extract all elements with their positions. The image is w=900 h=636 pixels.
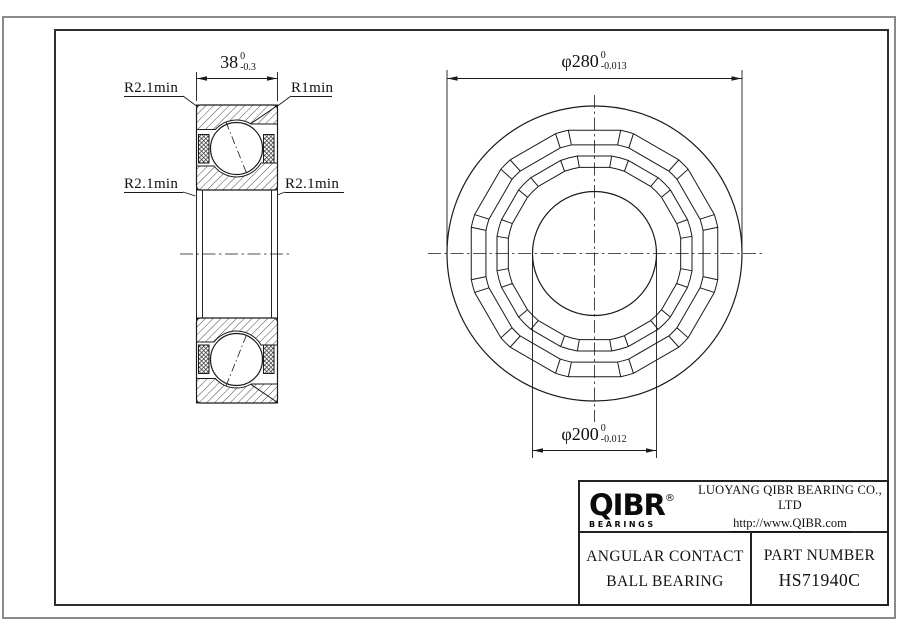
width-dimension-text: 38 0 -0.3 xyxy=(173,51,303,73)
title-block: QIBR® BEARINGS LUOYANG QIBR BEARING CO.,… xyxy=(578,480,889,606)
outer-dia-tolerance: 0 -0.013 xyxy=(601,50,627,72)
product-type-cell: ANGULAR CONTACT BALL BEARING xyxy=(580,533,752,604)
company-name: LUOYANG QIBR BEARING CO., LTD xyxy=(693,483,887,513)
top-section xyxy=(197,105,278,190)
bore-dia-value: φ200 xyxy=(561,423,598,445)
product-type-line1: ANGULAR CONTACT xyxy=(580,544,750,569)
front-view-centerlines xyxy=(428,95,762,422)
side-view-drawing xyxy=(180,72,292,403)
bore-dia-dimension-text: φ200 0 -0.012 xyxy=(529,423,659,445)
width-dim-tolerance: 0 -0.3 xyxy=(240,51,256,73)
logo-subtext: BEARINGS xyxy=(589,520,693,529)
part-number-label: PART NUMBER xyxy=(752,544,887,567)
outer-dia-dimension-text: φ280 0 -0.013 xyxy=(529,50,659,72)
drawing-sheet: 38 0 -0.3 R2.1min R1min R2.1min R2.1min … xyxy=(0,0,900,636)
part-number-cell: PART NUMBER HS71940C xyxy=(752,533,887,604)
company-info: LUOYANG QIBR BEARING CO., LTD http://www… xyxy=(693,483,887,531)
front-view-drawing xyxy=(428,70,762,458)
title-block-detail-row: ANGULAR CONTACT BALL BEARING PART NUMBER… xyxy=(580,533,887,604)
part-number-value: HS71940C xyxy=(752,567,887,593)
bore-dia-tolerance: 0 -0.012 xyxy=(601,423,627,445)
chamfer-label-top-left: R2.1min xyxy=(124,80,183,97)
company-logo: QIBR® BEARINGS xyxy=(580,485,693,529)
title-block-header-row: QIBR® BEARINGS LUOYANG QIBR BEARING CO.,… xyxy=(580,482,887,533)
registered-trademark-icon: ® xyxy=(665,493,675,504)
logo-wordmark: QIBR® xyxy=(589,485,693,519)
company-website: http://www.QIBR.com xyxy=(693,516,887,531)
chamfer-label-mid-left: R2.1min xyxy=(124,176,183,193)
chamfer-label-mid-right: R2.1min xyxy=(285,176,344,193)
product-type-line2: BALL BEARING xyxy=(580,569,750,594)
bottom-section xyxy=(197,318,278,403)
outer-dia-value: φ280 xyxy=(561,50,598,72)
width-dimension-lines xyxy=(197,72,278,101)
chamfer-label-top-right: R1min xyxy=(291,80,332,97)
width-dim-value: 38 xyxy=(220,51,238,73)
